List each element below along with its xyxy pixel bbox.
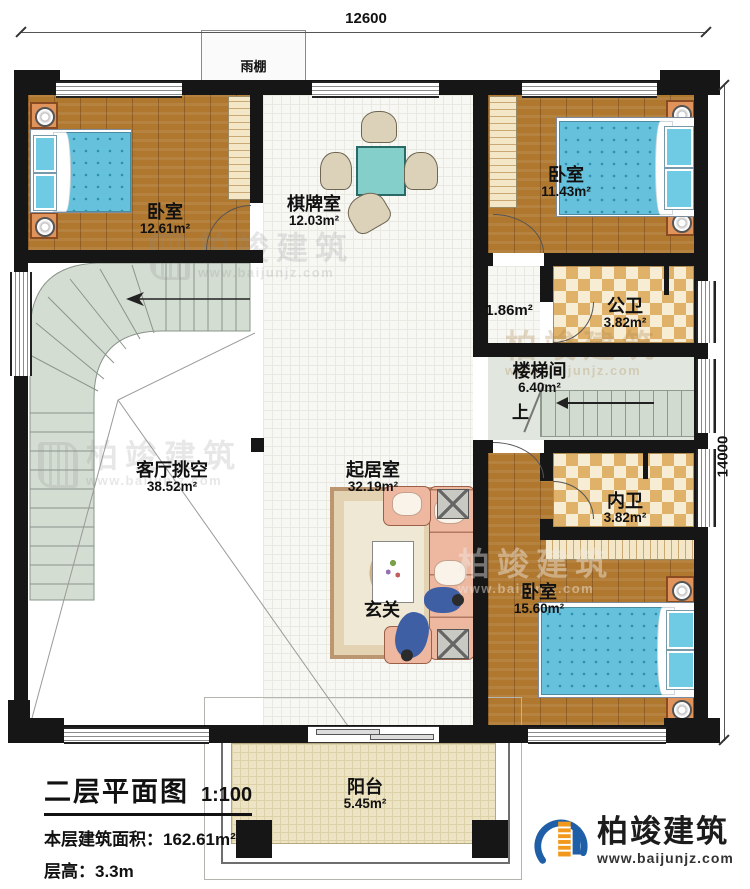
lamp-icon	[35, 107, 55, 127]
wall-stub	[251, 438, 264, 452]
stair-up-arrow	[556, 397, 568, 409]
window	[312, 81, 439, 98]
window	[10, 272, 32, 376]
room-label-bedroom-b: 卧室 15.60m²	[489, 583, 589, 616]
exterior-wall-left	[14, 80, 28, 743]
balcony-column	[472, 820, 508, 858]
interior-wall	[473, 95, 488, 253]
game-table	[356, 146, 406, 196]
interior-wall	[540, 266, 553, 302]
sliding-door	[308, 726, 439, 743]
interior-wall	[544, 440, 695, 453]
lamp-icon	[672, 700, 692, 720]
window	[696, 449, 716, 527]
room-label-foyer: 玄关	[364, 596, 400, 622]
company-name: 柏竣建筑	[597, 816, 734, 847]
drawing-title: 二层平面图	[44, 770, 189, 809]
end-table	[437, 489, 469, 519]
double-bed	[30, 129, 132, 213]
interior-wall	[540, 527, 697, 540]
chair	[320, 152, 352, 190]
floor-height-line: 层高：3.3m	[44, 857, 252, 882]
chair	[404, 152, 438, 190]
interior-wall	[473, 343, 695, 357]
interior-wall	[473, 440, 493, 453]
room-label-void: 客厅挑空 38.52m²	[107, 461, 237, 494]
end-table	[437, 629, 469, 659]
door-swing	[493, 442, 544, 478]
room-label-public-bath: 公卫 3.82m²	[585, 297, 665, 330]
stair-arrow-line	[566, 402, 654, 404]
window	[696, 281, 716, 343]
right-dimension-line	[724, 85, 725, 741]
interior-wall	[473, 453, 488, 725]
wall-corner	[660, 70, 720, 95]
chair	[361, 111, 397, 143]
bath-partition	[664, 263, 669, 295]
interior-wall	[28, 250, 263, 263]
window	[522, 81, 657, 98]
bath-partition	[643, 449, 648, 479]
room-label-inner-bath: 内卫 3.82m²	[585, 492, 665, 525]
room-label-balcony: 阳台 5.45m²	[310, 778, 420, 811]
window	[696, 359, 716, 433]
window	[56, 81, 182, 98]
wall-corner	[8, 718, 64, 743]
stairs-up-label: 上	[512, 398, 529, 423]
right-dimension-label: 14000	[715, 429, 732, 485]
company-logo-icon	[533, 812, 591, 870]
title-block: 二层平面图 1:100 本层建筑面积：162.61m² 层高：3.3m	[44, 770, 252, 882]
room-label-game-room: 棋牌室 12.03m²	[264, 195, 364, 228]
company-logo: 柏竣建筑 www.baijunjz.com	[533, 812, 734, 870]
nightstand	[666, 576, 695, 603]
drawing-scale: 1:100	[201, 784, 252, 807]
window	[64, 727, 209, 744]
person	[424, 587, 462, 613]
rain-canopy: 雨棚	[201, 30, 306, 81]
wall-corner	[14, 70, 60, 95]
window	[528, 727, 666, 744]
room-label-hall: 1.86m²	[478, 302, 540, 319]
room-label-bedroom-tr: 卧室 11.43m²	[516, 166, 616, 199]
top-dimension-line	[21, 32, 707, 33]
room-label-living: 起居室 32.19m²	[323, 461, 423, 494]
company-url: www.baijunjz.com	[597, 850, 734, 866]
nightstand	[30, 102, 58, 129]
floor-area-line: 本层建筑面积：162.61m²	[44, 825, 252, 850]
lamp-icon	[672, 581, 692, 601]
interior-wall	[473, 253, 493, 266]
rain-canopy-label: 雨棚	[240, 56, 266, 75]
sofa-pillow	[434, 560, 466, 586]
double-bed	[538, 602, 695, 698]
floor-plan: 12600 14000 雨棚	[0, 0, 750, 889]
interior-wall	[250, 95, 263, 203]
room-label-bedroom-tl: 卧室 12.61m²	[115, 203, 215, 236]
coffee-table	[372, 541, 414, 603]
nightstand	[30, 212, 58, 239]
lamp-icon	[35, 217, 55, 237]
sofa-pillow	[392, 492, 422, 516]
interior-wall	[544, 253, 708, 266]
wall-corner	[664, 718, 720, 743]
room-label-stairwell: 楼梯间 6.40m²	[487, 362, 592, 395]
top-dimension-label: 12600	[326, 10, 406, 27]
wardrobe	[489, 96, 517, 208]
